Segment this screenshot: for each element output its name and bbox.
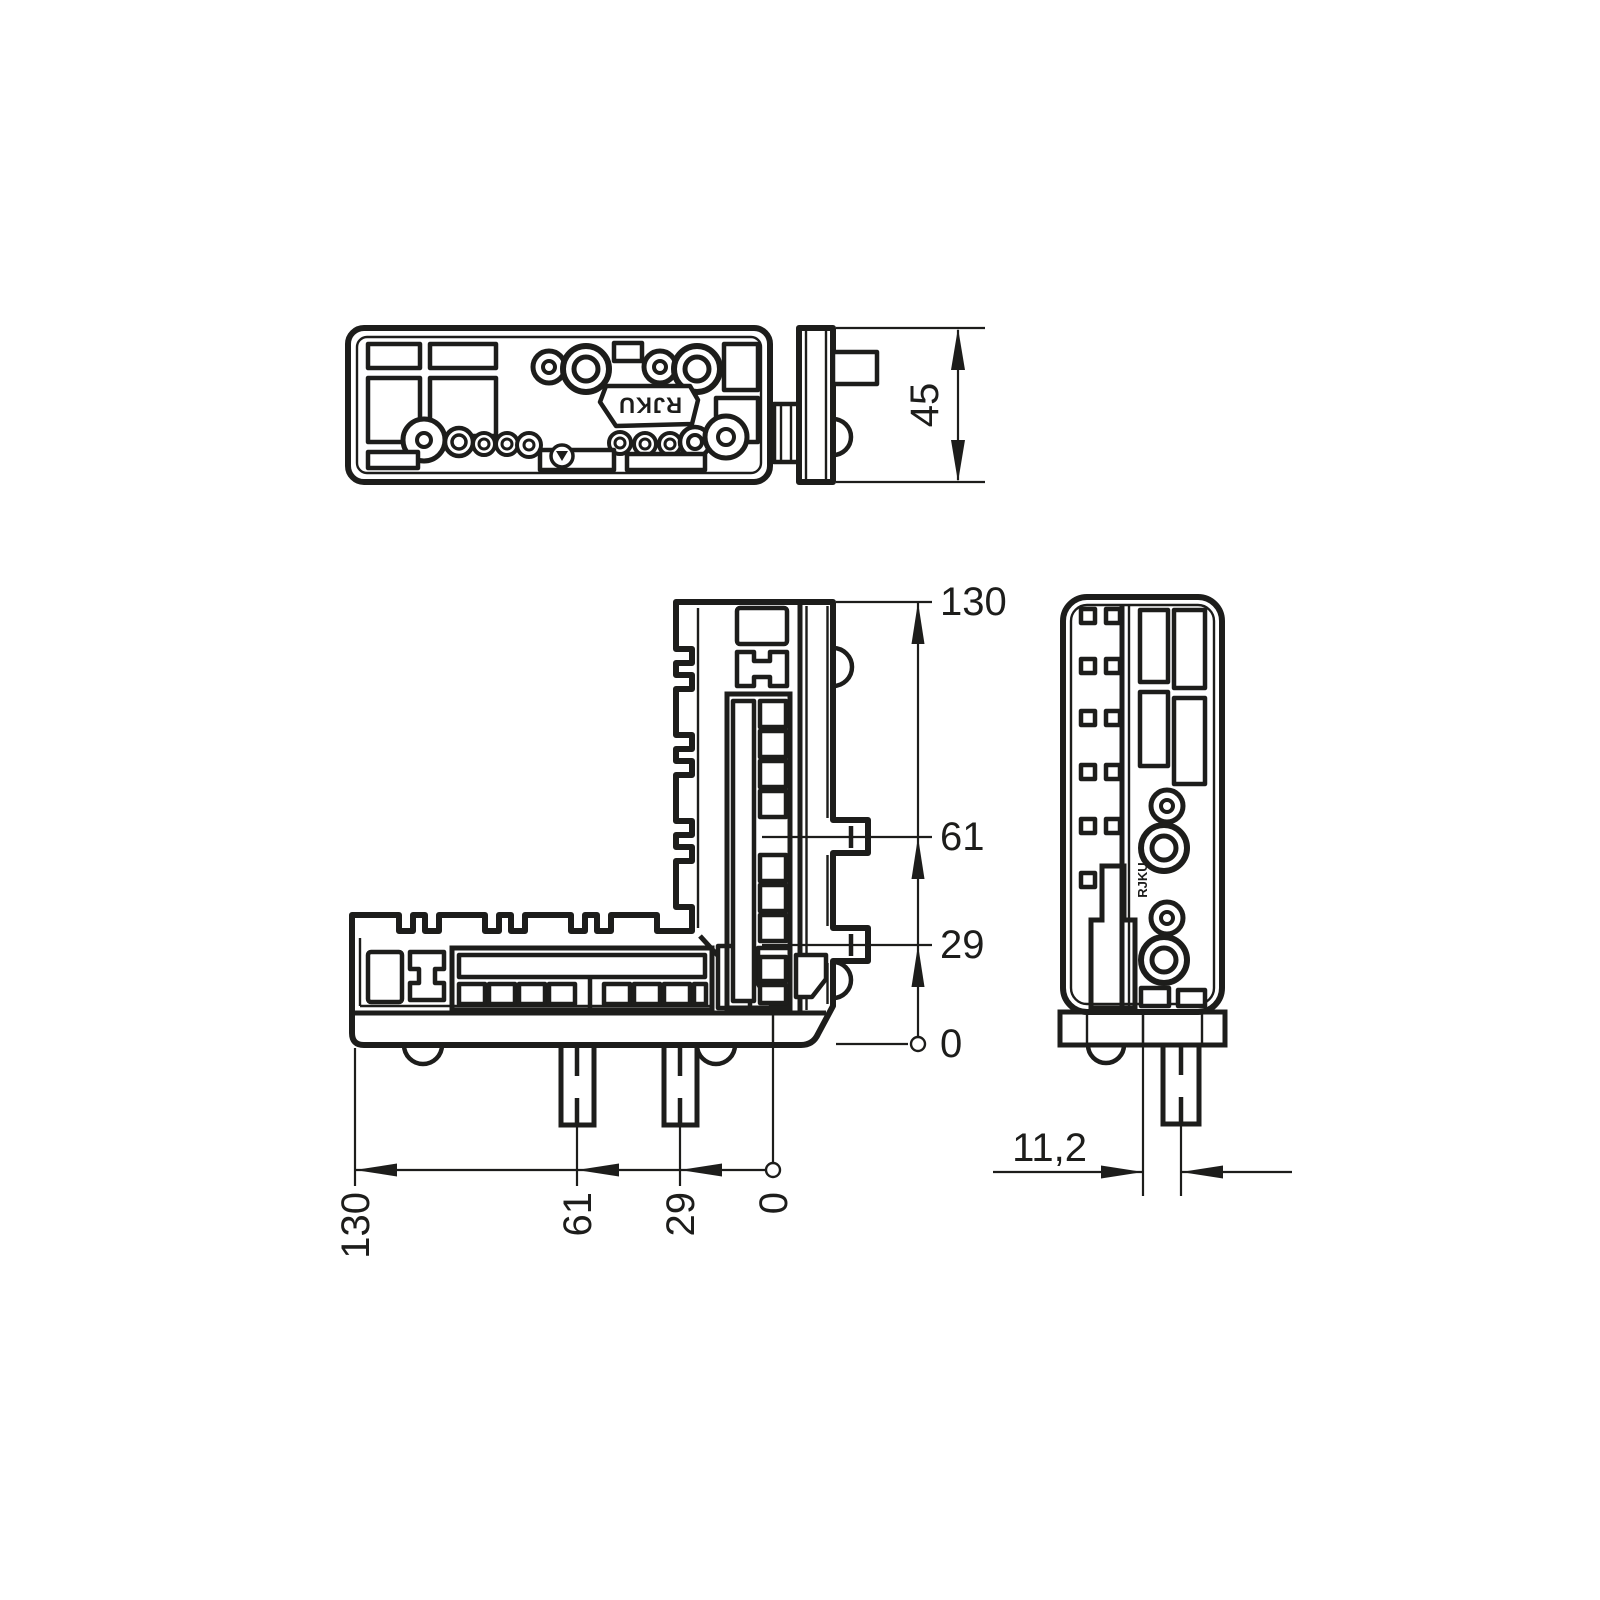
rib-cell (489, 984, 515, 1004)
rib-cell (634, 984, 660, 1004)
rib-cell (760, 731, 786, 757)
channel-slot (459, 955, 705, 977)
recycling-mark-icon (551, 445, 573, 467)
rib-cell (760, 915, 786, 941)
channel-slot (733, 701, 754, 1001)
screw-hole-center (417, 433, 431, 447)
dim-label-plate-height: 45 (903, 383, 947, 428)
ladder-tooth (1106, 659, 1120, 673)
dim-label-v-130: 130 (940, 580, 1007, 624)
arrow-left-icon (577, 1164, 619, 1177)
boss-hole-center (1161, 800, 1173, 812)
arrow-up-icon (912, 945, 925, 987)
rib-cell (459, 984, 485, 1004)
brand-mark: RJKU (618, 393, 682, 418)
arrow-up-icon (951, 328, 965, 370)
ladder-tooth (1081, 819, 1095, 833)
technical-drawing-page: RJKU (0, 0, 1600, 1600)
rib-cell (664, 984, 690, 1004)
dim-label-h-29: 29 (659, 1192, 703, 1237)
screw-hole-center (524, 440, 534, 450)
boss-hole-center (1161, 912, 1173, 924)
dim-label-h-61: 61 (556, 1192, 600, 1237)
dim-label-h-130: 130 (334, 1192, 378, 1259)
pocket (1140, 692, 1168, 766)
horizontal-ordinate-dimension: 130 61 29 0 (334, 1048, 796, 1259)
ladder-tooth (1081, 765, 1095, 779)
rib-cell (760, 985, 786, 1003)
corner-joint-drawing: RJKU (0, 0, 1600, 1600)
boss-hole-center (654, 361, 666, 373)
pocket (1140, 610, 1168, 682)
arrow-right-icon (1101, 1166, 1143, 1179)
rib-cell (760, 885, 786, 911)
screw-hole-center (615, 438, 625, 448)
mounting-tab (833, 352, 877, 384)
dim-label-h-0: 0 (752, 1192, 796, 1214)
arrow-left-icon (355, 1164, 397, 1177)
screw-hole-center (665, 439, 675, 449)
screw-hole-center (502, 439, 512, 449)
pocket (1178, 990, 1205, 1006)
dim-label-v-29: 29 (940, 923, 985, 967)
dim-label-v-0: 0 (940, 1022, 962, 1066)
pocket (627, 454, 705, 470)
boss-hole-center (685, 357, 709, 381)
screw-hole-center (718, 429, 734, 445)
pocket (724, 344, 758, 390)
front-view (352, 602, 868, 1125)
rib-cell (519, 984, 545, 1004)
rib-cell (760, 701, 786, 727)
pocket (368, 952, 402, 1002)
rib-cell (760, 957, 786, 981)
screw-hole-center (640, 439, 650, 449)
pin-offset-dimension: 11,2 (993, 1014, 1292, 1196)
rib-cell (694, 984, 706, 1004)
dim-label-v-61: 61 (940, 815, 985, 859)
boss-hole-center (574, 357, 598, 381)
boss-hole-center (1152, 948, 1176, 972)
pocket (1174, 698, 1205, 784)
boss-hole-center (1152, 836, 1176, 860)
rib-cell (549, 984, 575, 1004)
rib-cell (604, 984, 630, 1004)
arrow-up-icon (912, 837, 925, 879)
arrow-left-icon (680, 1164, 722, 1177)
arrow-down-icon (951, 440, 965, 482)
screw-hole-center (452, 435, 466, 449)
ladder-tooth (1081, 873, 1095, 887)
boss-hole-center (543, 361, 555, 373)
ladder-tooth (1106, 765, 1120, 779)
ladder-tooth (1081, 609, 1095, 623)
ladder-tooth (1106, 609, 1120, 623)
pocket (1141, 988, 1169, 1006)
pocket (368, 452, 418, 468)
pocket (614, 343, 642, 361)
origin-marker (766, 1163, 780, 1177)
rib-cell (760, 855, 786, 881)
ladder-tooth (1081, 711, 1095, 725)
screw-hole-center (688, 435, 702, 449)
ladder-tooth (1081, 659, 1095, 673)
corner-step (774, 404, 799, 462)
rivet-bump (1088, 1045, 1124, 1063)
rib-cell (760, 791, 786, 817)
pocket (1174, 610, 1205, 688)
ladder-tooth (1106, 819, 1120, 833)
arrow-up-icon (912, 602, 925, 644)
plate-edge (799, 328, 833, 482)
pocket (430, 344, 496, 368)
arrow-left-icon (1181, 1166, 1223, 1179)
pocket (737, 608, 787, 644)
screw-hole-center (479, 439, 489, 449)
brand-mark-side: RJKU (1135, 862, 1150, 897)
pocket (368, 344, 420, 368)
rib-cell (760, 761, 786, 787)
dim-label-pin-offset: 11,2 (1012, 1126, 1087, 1170)
top-view: RJKU (348, 328, 770, 482)
ladder-tooth (1106, 711, 1120, 725)
origin-marker (911, 1037, 925, 1051)
top-side-view: 45 (774, 328, 985, 482)
